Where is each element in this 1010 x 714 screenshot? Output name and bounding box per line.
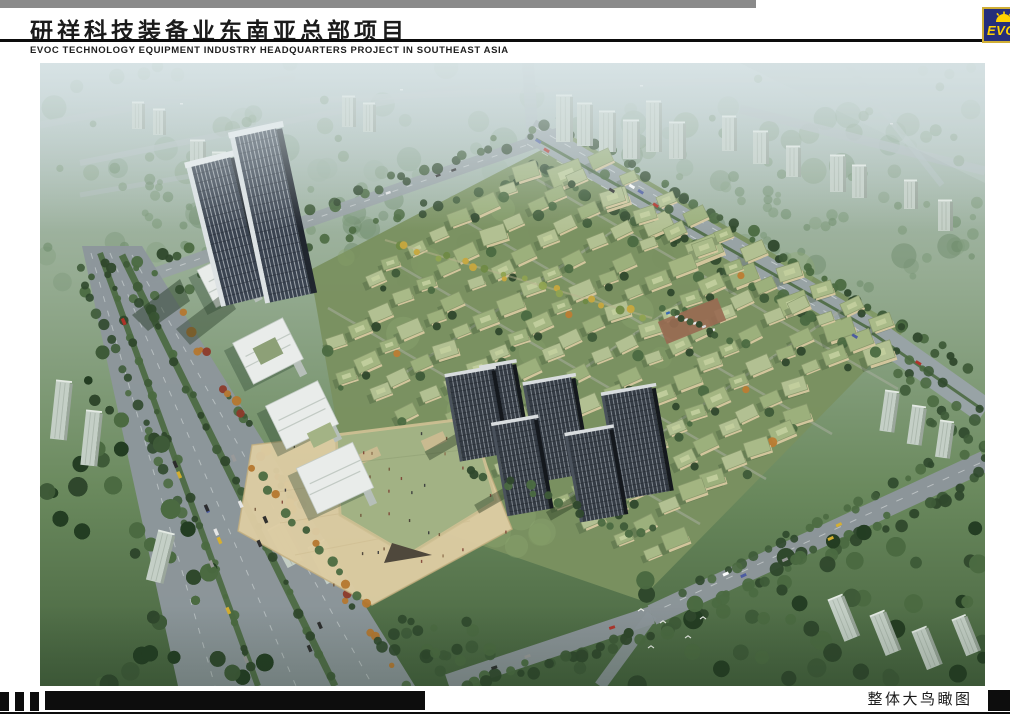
footer-tick-bar <box>15 692 24 711</box>
top-gray-strip <box>0 0 756 8</box>
footer-corner-square <box>988 690 1010 711</box>
footer-tick-bar <box>30 692 39 711</box>
evoc-logo-sun-icon <box>992 11 1010 23</box>
evoc-logo: EVOC <box>982 7 1010 43</box>
header-rule <box>0 39 1010 42</box>
drawing-caption: 整体大鸟瞰图 <box>858 690 982 710</box>
presentation-board: 研祥科技装备业东南亚总部项目 EVOC TECHNOLOGY EQUIPMENT… <box>0 0 1010 714</box>
evoc-logo-text: EVOC <box>987 23 1010 39</box>
aerial-rendering <box>40 63 985 686</box>
footer-bar <box>45 691 425 710</box>
aerial-rendering-canvas <box>40 63 985 686</box>
footer-tick-bar <box>0 692 9 711</box>
project-subtitle-en: EVOC TECHNOLOGY EQUIPMENT INDUSTRY HEADQ… <box>30 45 509 56</box>
